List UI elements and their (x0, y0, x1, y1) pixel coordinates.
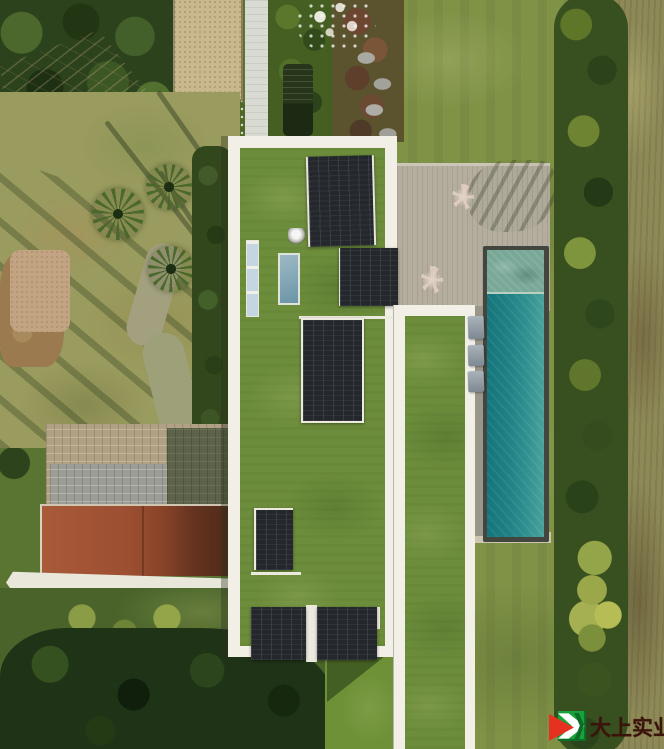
pool-lounger (468, 345, 485, 367)
solar-panel-array (301, 318, 364, 423)
skylight-strip (246, 240, 259, 317)
left-wing-roof (228, 136, 397, 657)
panel-mount-rail (251, 572, 301, 575)
pool-lounger (468, 316, 485, 340)
palm-tree (92, 188, 144, 240)
solar-panel-array (254, 508, 293, 570)
palm-tree (148, 246, 194, 292)
yellow-green-bush (560, 560, 640, 660)
rooftop-vent (288, 228, 306, 244)
tree-shadow-on-deck (468, 160, 554, 232)
aerial-photo-scene: 大上实业 (0, 0, 664, 749)
skylight-window (278, 253, 300, 305)
stepping-stones (350, 46, 404, 146)
white-path (245, 0, 270, 141)
green-roof-right (405, 316, 465, 749)
wall-shadow-line (221, 136, 228, 656)
solar-panel-array (317, 607, 377, 660)
watermark: 大上实业 (544, 704, 664, 749)
deck-drain-mark (421, 266, 443, 294)
panel-mount-rail (306, 605, 317, 662)
pool-shallow-end (487, 250, 544, 294)
watermark-text: 大上实业 (590, 712, 664, 742)
solar-panel-array (251, 607, 306, 660)
lap-pool (483, 246, 549, 542)
green-roof-left (240, 148, 385, 646)
pink-gravel-patch (10, 250, 70, 332)
watermark-logo-icon (549, 711, 586, 744)
deck-drain-mark (452, 184, 474, 210)
garden-furniture (283, 64, 313, 136)
pool-lounger (468, 371, 485, 393)
right-wing-roof (393, 305, 475, 749)
solar-panel-array (306, 155, 376, 247)
gravel-court (173, 0, 243, 102)
terracotta-roof (40, 504, 234, 576)
palm-tree (146, 164, 192, 210)
panel-mount-rail (377, 607, 380, 629)
solar-panel-array (339, 248, 398, 306)
